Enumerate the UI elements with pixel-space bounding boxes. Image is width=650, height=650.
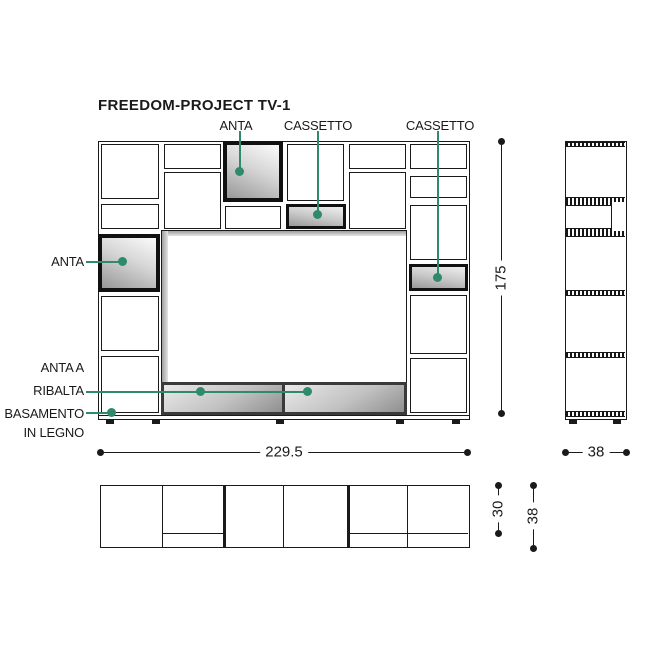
shelf-edge-band bbox=[566, 142, 625, 147]
plan-divider bbox=[347, 486, 350, 547]
shelf-cell bbox=[101, 356, 159, 413]
label-anta-ribalta-line2: RIBALTA bbox=[14, 383, 84, 398]
plan-depth-line bbox=[350, 533, 407, 534]
shelf-cell bbox=[410, 205, 467, 260]
label-anta-top: ANTA bbox=[206, 118, 266, 133]
plan-depth-line bbox=[408, 533, 468, 534]
shelf-cell bbox=[410, 144, 467, 169]
dimension-endpoint-dot bbox=[623, 449, 630, 456]
shelf-cell bbox=[101, 204, 159, 229]
anta-left-door bbox=[98, 234, 160, 292]
plan-divider bbox=[223, 486, 226, 547]
label-anta-left: ANTA bbox=[14, 254, 84, 269]
label-basamento-line2: IN LEGNO bbox=[2, 425, 84, 440]
plan-divider bbox=[162, 486, 163, 547]
foot bbox=[152, 420, 160, 424]
dimension-endpoint-dot bbox=[562, 449, 569, 456]
leader-line-anta-top bbox=[239, 131, 241, 171]
technical-drawing-sheet: FREEDOM-PROJECT TV-1 bbox=[0, 0, 650, 650]
dimension-endpoint-dot bbox=[530, 482, 537, 489]
dimension-endpoint-dot bbox=[495, 482, 502, 489]
shelf-cell bbox=[164, 172, 221, 229]
flap-door-left bbox=[164, 385, 282, 412]
shelf-cell bbox=[101, 296, 159, 351]
label-basamento-line1: BASAMENTO bbox=[2, 406, 84, 421]
side-view bbox=[565, 141, 627, 420]
dimension-endpoint-dot bbox=[495, 530, 502, 537]
foot bbox=[452, 420, 460, 424]
label-anta-ribalta-line1: ANTA A bbox=[14, 360, 84, 375]
foot bbox=[569, 420, 577, 424]
foot bbox=[276, 420, 284, 424]
label-cassetto-right: CASSETTO bbox=[402, 118, 478, 133]
plan-view bbox=[100, 485, 470, 548]
plan-depth-line bbox=[163, 533, 223, 534]
shelf-cell bbox=[410, 176, 467, 198]
shelf-cell bbox=[410, 295, 467, 354]
shelf-cell bbox=[287, 144, 344, 201]
shelf-cell bbox=[101, 144, 159, 199]
dimension-plan-38-label: 38 bbox=[525, 503, 542, 530]
side-notch bbox=[611, 202, 626, 231]
dimension-height-label: 175 bbox=[493, 260, 510, 295]
shelf-cell bbox=[225, 206, 281, 229]
plan-divider bbox=[407, 486, 408, 547]
niche-shadow-top bbox=[162, 231, 406, 236]
shelf-cell bbox=[349, 172, 406, 229]
shelf-edge-band bbox=[566, 411, 625, 417]
drawing-title: FREEDOM-PROJECT TV-1 bbox=[98, 97, 291, 114]
dimension-endpoint-dot bbox=[530, 545, 537, 552]
shelf-edge-band bbox=[566, 290, 625, 296]
foot bbox=[106, 420, 114, 424]
anta-top-door bbox=[223, 141, 283, 202]
leader-dot bbox=[235, 167, 244, 176]
shelf-cell bbox=[349, 144, 406, 169]
shelf-edge-band bbox=[566, 352, 625, 358]
leader-line-cassetto-top bbox=[317, 131, 319, 214]
shelf-cell bbox=[164, 144, 221, 169]
leader-dot bbox=[303, 387, 312, 396]
label-cassetto-top: CASSETTO bbox=[280, 118, 356, 133]
plan-divider bbox=[283, 486, 284, 547]
leader-dot bbox=[433, 273, 442, 282]
shelf-cell bbox=[410, 358, 467, 413]
foot bbox=[613, 420, 621, 424]
dimension-width-label: 229.5 bbox=[260, 444, 308, 461]
dimension-endpoint-dot bbox=[498, 138, 505, 145]
dimension-plan-30-label: 30 bbox=[490, 496, 507, 523]
foot bbox=[396, 420, 404, 424]
leader-dot bbox=[107, 408, 116, 417]
leader-dot bbox=[118, 257, 127, 266]
dimension-side-depth-label: 38 bbox=[583, 444, 610, 461]
leader-dot bbox=[313, 210, 322, 219]
leader-dot bbox=[196, 387, 205, 396]
dimension-endpoint-dot bbox=[97, 449, 104, 456]
dimension-endpoint-dot bbox=[498, 410, 505, 417]
leader-line-cassetto-right bbox=[437, 131, 439, 277]
dimension-endpoint-dot bbox=[464, 449, 471, 456]
